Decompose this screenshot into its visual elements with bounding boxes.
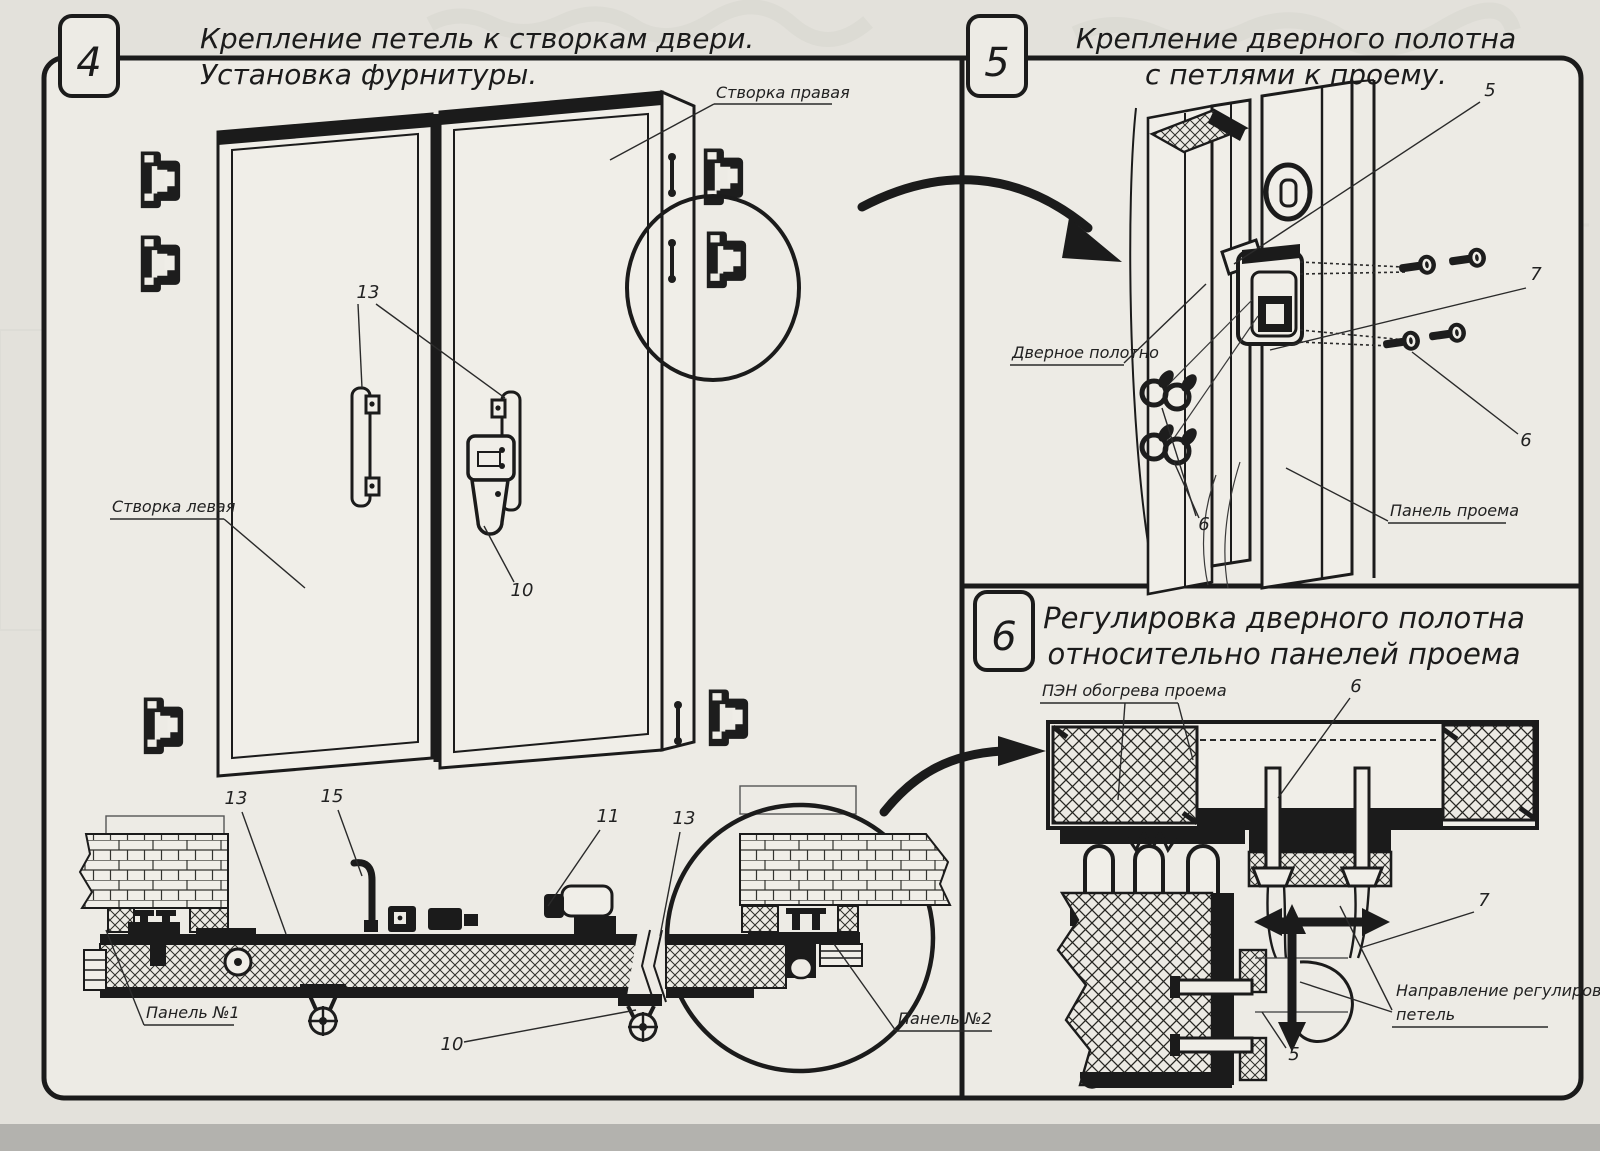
brick-wall-left xyxy=(80,834,228,908)
scanner-strip xyxy=(0,1124,1600,1151)
label-panel1: Панель №1 xyxy=(146,1003,240,1022)
label-opening-panel: Панель проема xyxy=(1390,501,1519,520)
scanned-drawing-sheet: 4 Крепление петель к створкам двери. Уст… xyxy=(0,0,1600,1151)
label-direction-line1: Направление регулировки xyxy=(1396,981,1600,1000)
callout-7-strap: 7 xyxy=(1478,890,1490,911)
panel4-title-line1: Крепление петель к створкам двери. xyxy=(200,22,754,55)
panel4-title-line2: Установка фурнитуры. xyxy=(200,58,537,91)
callout-6-left: 6 xyxy=(1198,514,1209,535)
panel4-number: 4 xyxy=(76,40,101,86)
door-leaves-drawing xyxy=(218,92,694,776)
callout-13-section: 13 xyxy=(225,788,248,809)
label-heater: ПЭН обогрева проема xyxy=(1042,681,1227,700)
panel5-title-line1: Крепление дверного полотна xyxy=(1076,22,1516,55)
panel6-title-line1: Регулировка дверного полотна xyxy=(1043,601,1525,635)
callout-7: 7 xyxy=(1530,264,1542,285)
panel6-number: 6 xyxy=(991,614,1016,660)
label-right-leaf: Створка правая xyxy=(716,83,850,102)
panel5-number: 5 xyxy=(984,40,1009,86)
panel6-title-line2: относительно панелей проема xyxy=(1048,637,1521,671)
label-direction-line2: петель xyxy=(1396,1005,1455,1024)
label-door-leaf: Дверное полотно xyxy=(1011,343,1159,362)
drawing-canvas: 4 Крепление петель к створкам двери. Уст… xyxy=(0,0,1600,1151)
callout-10-support: 10 xyxy=(441,1034,464,1055)
callout-6-right: 6 xyxy=(1520,430,1531,451)
callout-11-lock: 11 xyxy=(597,806,620,827)
label-left-leaf: Створка левая xyxy=(112,497,236,516)
callout-5: 5 xyxy=(1484,80,1495,101)
callout-6-bolt: 6 xyxy=(1350,676,1361,697)
callout-13b-section: 13 xyxy=(673,808,696,829)
callout-5-plate: 5 xyxy=(1288,1044,1299,1065)
panel5-title-line2: с петлями к проему. xyxy=(1145,58,1447,91)
label-panel2: Панель №2 xyxy=(898,1009,992,1028)
callout-15-bracket: 15 xyxy=(321,786,344,807)
callout-10-latch: 10 xyxy=(511,580,534,601)
lock-11 xyxy=(562,886,612,916)
brick-wall-right xyxy=(740,834,950,905)
callout-13-handles: 13 xyxy=(357,282,380,303)
